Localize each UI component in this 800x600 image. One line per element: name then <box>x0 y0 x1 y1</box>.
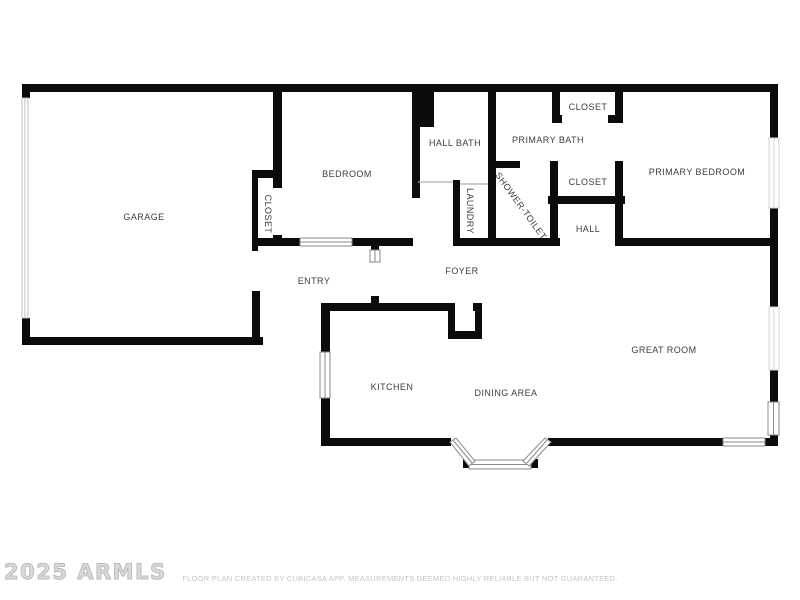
room-label-hall-bath: HALL BATH <box>429 138 481 148</box>
room-label-kitchen: KITCHEN <box>371 382 414 392</box>
room-label-dining-area: DINING AREA <box>475 388 538 398</box>
room-label-hall: HALL <box>576 224 600 234</box>
floorplan-drawing <box>0 0 800 600</box>
room-label-primary-bedroom: PRIMARY BEDROOM <box>649 167 745 177</box>
room-label-closet-mid: CLOSET <box>569 177 608 187</box>
room-label-closet-top: CLOSET <box>569 102 608 112</box>
room-label-laundry: LAUNDRY <box>465 188 475 234</box>
room-label-great-room: GREAT ROOM <box>631 345 696 355</box>
room-label-bedroom: BEDROOM <box>322 169 372 179</box>
room-label-primary-bath: PRIMARY BATH <box>512 135 584 145</box>
room-label-entry: ENTRY <box>298 276 331 286</box>
walls <box>22 84 778 468</box>
windows <box>300 238 779 469</box>
faint-windows <box>22 98 779 370</box>
floorplan-canvas: GARAGE CLOSET BEDROOM HALL BATH PRIMARY … <box>0 0 800 600</box>
room-label-garage-closet: CLOSET <box>263 195 273 234</box>
room-label-garage: GARAGE <box>123 212 164 222</box>
room-label-foyer: FOYER <box>445 266 478 276</box>
armls-watermark: 2025 ARMLS <box>4 560 167 584</box>
cubicasa-disclaimer: FLOOR PLAN CREATED BY CUBICASA APP. MEAS… <box>182 574 617 583</box>
